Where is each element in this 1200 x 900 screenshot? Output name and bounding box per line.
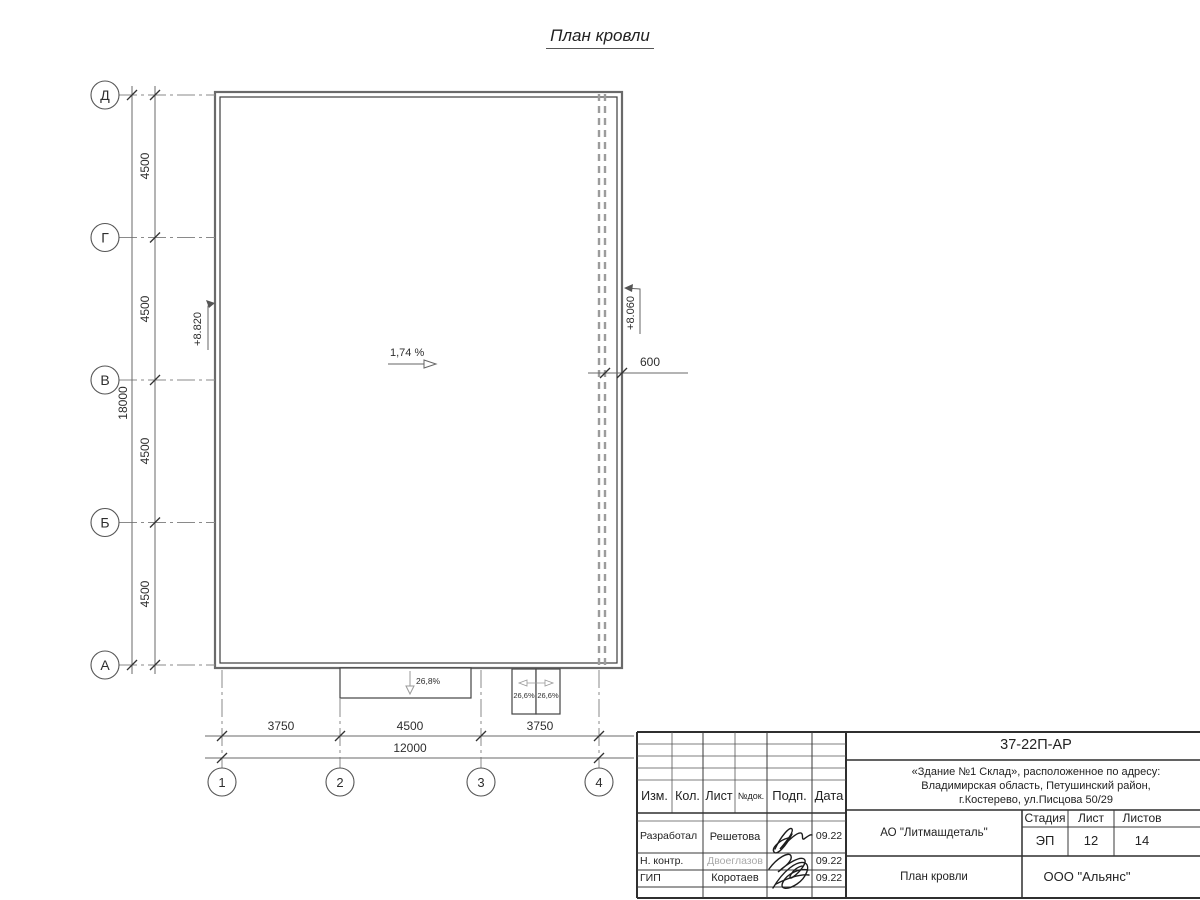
person-date: 09.22 [812,821,846,853]
col-axis-label: 1 [218,775,225,790]
dim-label: 4500 [138,580,152,607]
col-header-data: Дата [812,780,846,813]
elevation-mark-left: +8.820 [192,300,215,350]
row-axis-label: В [100,372,109,388]
dim-total-label: 18000 [116,386,130,420]
person-name: Двоеглазов [703,853,767,870]
col-header-kol: Кол. [672,780,703,813]
person-role: ГИП [640,870,703,887]
person-date: 09.22 [812,853,846,870]
row-axis-bubbles: Д Г В Б А [91,81,119,679]
stage-value: ЭП [1022,827,1068,856]
dim-label: 4500 [397,719,424,733]
drawing-sheet: План кровли [0,0,1200,900]
client-name: АО "Литмашдеталь" [846,810,1022,856]
sheets-total: 14 [1114,827,1170,856]
row-axis-label: А [100,657,110,673]
signature-control-gip [769,854,809,888]
dim-total-label: 12000 [393,741,427,755]
col-header-ndok: №док. [735,780,767,813]
col-axis-label: 3 [477,775,484,790]
person-name: Коротаев [703,870,767,887]
elevation-mark-right: +8.060 [624,284,640,334]
dim-label: 3750 [268,719,295,733]
project-name: «Здание №1 Склад», расположенное по адре… [846,765,1200,807]
col-axis-bubbles: 1 2 3 4 [208,768,613,796]
row-axis-label: Г [101,230,109,246]
col-header-list: Лист [703,780,735,813]
project-line: «Здание №1 Склад», расположенное по адре… [846,765,1200,779]
col-header-izm: Изм. [637,780,672,813]
dim-label: 4500 [138,152,152,179]
canopy-slope-label: 26,8% [416,676,441,686]
col-axis-label: 2 [336,775,343,790]
gutter-dim-label: 600 [640,355,660,369]
project-line: г.Костерево, ул.Писцова 50/29 [846,793,1200,807]
row-axis-label: Д [100,87,110,103]
row-axis-label: Б [100,515,109,531]
drawing-title: План кровли [846,856,1022,898]
person-role: Разработал [640,821,703,853]
stage-header: Стадия [1022,810,1068,827]
row-axis-lines [119,95,215,665]
dim-label: 3750 [527,719,554,733]
building-outline [215,92,622,668]
canopy-twin: 26,6% 26,6% [512,669,560,714]
slope-label: 1,74 % [390,347,424,359]
sheet-number: 12 [1068,827,1114,856]
person-name: Решетова [703,821,767,853]
company-name: ООО "Альянс" [1022,856,1152,898]
canopy-wide: 26,8% [340,668,471,698]
sheet-header: Лист [1068,810,1114,827]
sheets-header: Листов [1114,810,1170,827]
person-date: 09.22 [812,870,846,887]
dim-label: 4500 [138,295,152,322]
canopy-slope-label: 26,6% [537,691,559,700]
col-header-podp: Подп. [767,780,812,813]
doc-number: 37-22П-АР [846,732,1200,760]
signature-developer [773,828,812,852]
canopy-slope-label: 26,6% [513,691,535,700]
col-axis-label: 4 [595,775,602,790]
elevation-label: +8.060 [625,296,637,330]
dim-label: 4500 [138,437,152,464]
project-line: Владимирская область, Петушинский район, [846,779,1200,793]
person-role: Н. контр. [640,853,703,870]
bottom-dimension-lines: 3750 4500 3750 12000 [205,719,634,763]
elevation-label: +8.820 [192,312,204,346]
